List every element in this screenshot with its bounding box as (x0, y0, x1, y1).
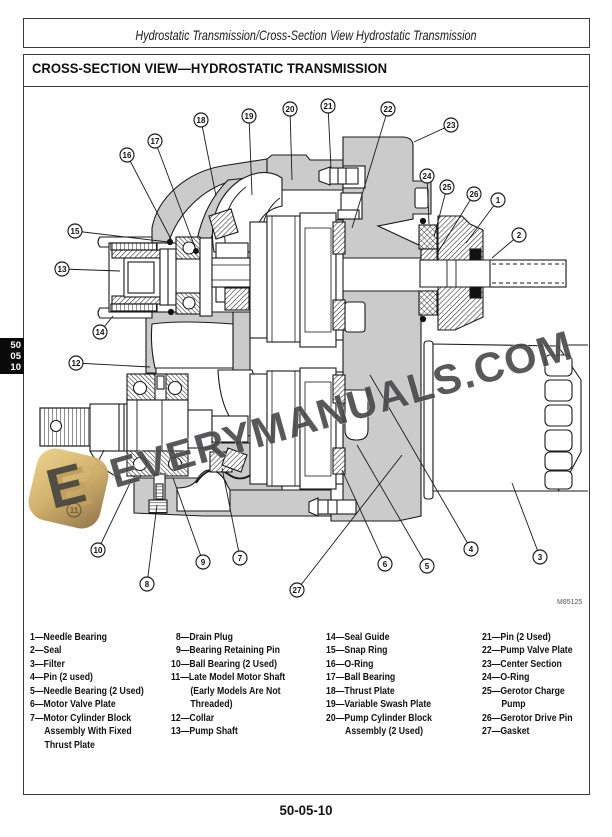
svg-text:13: 13 (58, 265, 67, 274)
svg-text:12: 12 (72, 359, 81, 368)
svg-text:10: 10 (94, 546, 103, 555)
svg-text:1: 1 (496, 196, 501, 205)
svg-text:17: 17 (151, 137, 160, 146)
svg-text:9: 9 (201, 558, 206, 567)
svg-text:24: 24 (423, 172, 432, 181)
svg-text:11: 11 (70, 506, 79, 515)
svg-text:7: 7 (238, 554, 243, 563)
svg-text:8: 8 (145, 580, 150, 589)
svg-text:4: 4 (469, 545, 474, 554)
svg-text:26: 26 (470, 190, 479, 199)
svg-text:M85125: M85125 (557, 599, 582, 606)
svg-text:21: 21 (324, 102, 333, 111)
svg-text:19: 19 (245, 112, 254, 121)
svg-text:14: 14 (96, 328, 105, 337)
svg-text:5: 5 (425, 562, 430, 571)
svg-text:22: 22 (384, 105, 393, 114)
svg-text:25: 25 (443, 183, 452, 192)
svg-text:6: 6 (383, 560, 388, 569)
svg-text:2: 2 (517, 231, 522, 240)
svg-text:3: 3 (538, 553, 543, 562)
svg-text:23: 23 (447, 121, 456, 130)
svg-text:27: 27 (293, 586, 302, 595)
svg-text:20: 20 (286, 105, 295, 114)
svg-text:15: 15 (71, 227, 80, 236)
svg-text:18: 18 (197, 116, 206, 125)
svg-text:16: 16 (123, 151, 132, 160)
